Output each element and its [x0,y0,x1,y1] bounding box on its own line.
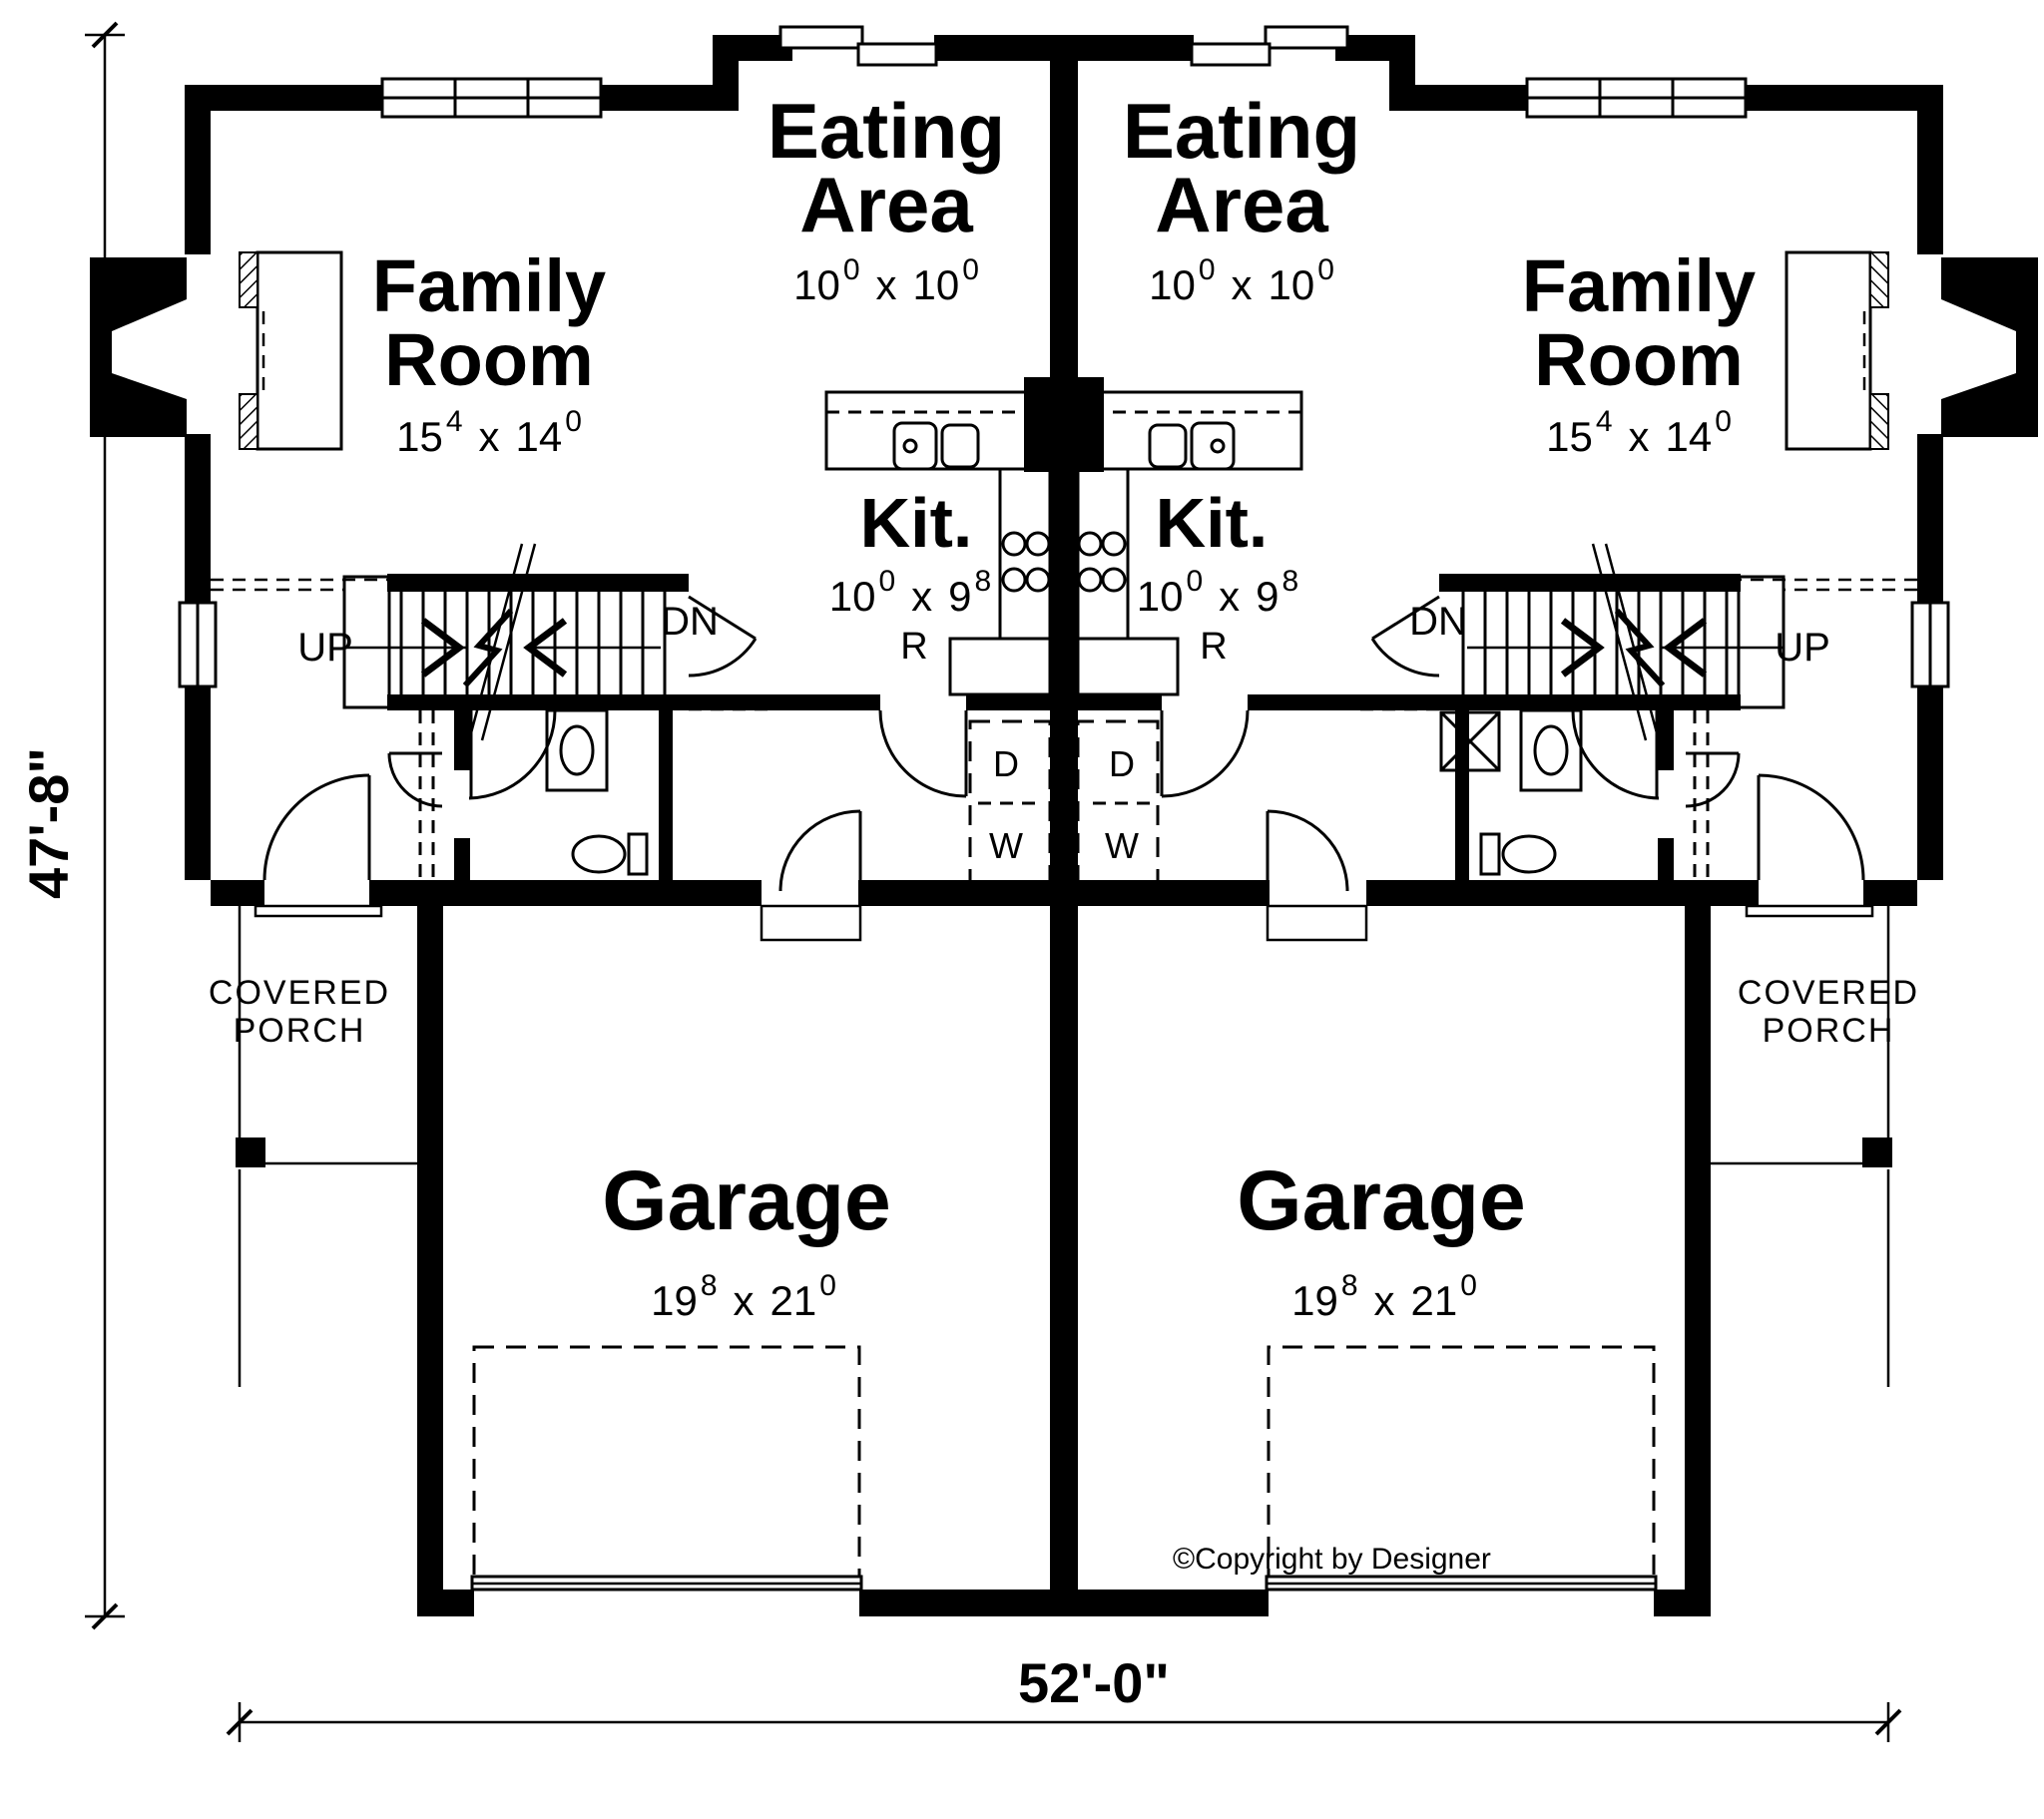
refrigerator-label: R [1200,626,1227,668]
washer-label: W [989,825,1023,866]
washer-label: W [1105,825,1139,866]
counter [826,392,1050,469]
garage-steps [762,906,860,940]
party-wall [1050,35,1064,1590]
eating-area-window [780,27,936,65]
stair-wall-top [387,574,689,592]
side-wall-window [180,603,216,686]
kitchen-label: Kit. [860,484,973,562]
family-room-label: Family [372,244,606,327]
burner [1027,533,1049,555]
entry-closet [389,710,442,880]
sink-basin [942,425,978,467]
covered-porch-label: PORCH [1763,1012,1895,1050]
garage-side-wall [417,880,443,1616]
hearth [257,252,341,449]
garage-door-track [474,1347,859,1587]
floor-plan-drawing: Family Room 154x140 Eating Area 100x100 … [0,0,2044,1819]
stair-down-label: DN [1409,600,1467,644]
kitchen-size: 100x98 [829,565,991,620]
height-dimension-label: 47'-8" [17,747,80,899]
kitchen-label: Kit. [1156,484,1269,562]
eating-area-size: 100x100 [793,253,979,308]
stair-wall-bottom [387,694,689,710]
stair-down-label: DN [661,600,719,644]
garage-label: Garage [1237,1153,1526,1247]
toilet-tank [629,834,647,874]
copyright-notice: ©Copyright by Designer [1173,1543,1491,1576]
width-dimension-label: 52'-0" [1018,1651,1170,1714]
refrigerator-box [950,639,1050,694]
refrigerator-label: R [900,626,927,668]
toilet-bowl [573,836,625,872]
entry-door [264,775,369,880]
family-room-window [382,79,601,117]
burner [1003,569,1025,591]
stair-up-label: UP [297,626,353,670]
fireplace [90,252,341,449]
eating-area-size: 100x100 [1149,253,1334,308]
family-room-label: Room [384,318,594,401]
hall-kitchen-door [880,710,966,796]
family-room-label: Room [1534,318,1744,401]
porch-steps [255,906,381,916]
bath-door [469,710,555,798]
eating-area-label: Area [1155,161,1328,248]
garage-door [472,1347,861,1590]
family-room-size: 154x140 [1546,405,1732,460]
burner [1027,569,1049,591]
kitchen-size: 100x98 [1137,565,1298,620]
entry [236,775,442,1387]
covered-porch-label: COVERED [209,974,390,1012]
porch-post [236,1137,265,1167]
garage-label: Garage [602,1153,891,1247]
garage-entry-door [762,811,860,940]
bath-sink [561,726,593,774]
eating-area-label: Area [799,161,973,248]
family-room-size: 154x140 [396,405,582,460]
dryer-label: D [993,743,1019,784]
bathroom [469,710,647,874]
covered-porch-label: COVERED [1738,974,1919,1012]
covered-porch-label: PORCH [234,1012,366,1050]
stair-break-line [465,544,535,740]
floor-plan-page: Family Room 154x140 Eating Area 100x100 … [0,0,2044,1819]
chase-box [1441,712,1499,770]
family-room-label: Family [1522,244,1756,327]
garage-size: 198x210 [1291,1269,1477,1324]
dimension-width: 52'-0" [228,1651,1900,1742]
garage-size: 198x210 [651,1269,836,1324]
dryer-label: D [1109,743,1135,784]
burner [1003,533,1025,555]
stair-up-label: UP [1775,626,1830,670]
